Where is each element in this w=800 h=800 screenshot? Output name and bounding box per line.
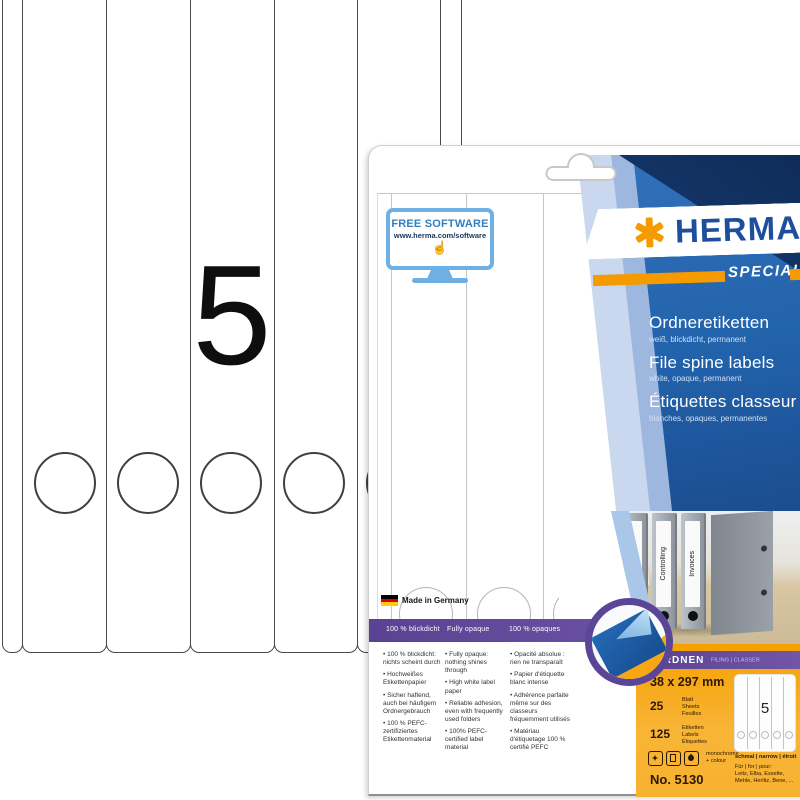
label-count: 125 <box>650 727 670 741</box>
binder-spine-label: Invoices <box>685 521 700 607</box>
binder-label-text: Controlling <box>660 547 667 580</box>
product-titles: Ordneretiketten weiß, blickdicht, perman… <box>649 313 800 432</box>
free-software-url: www.herma.com/software <box>390 231 490 240</box>
window-line <box>543 193 544 619</box>
binder-invoices: Invoices <box>681 513 706 629</box>
mini-sheet-diagram: 5 <box>735 675 795 751</box>
width-note: schmal | narrow | étroit <box>735 754 799 760</box>
compatibility-note: Für | for | pour: Leitz, Elba, Esselte, … <box>735 763 800 785</box>
subtitle-en: white, opaque, permanent <box>649 374 800 383</box>
title-fr: Étiquettes classeur <box>649 392 800 412</box>
title-de: Ordneretiketten <box>649 313 800 333</box>
feature-item: High white label paper <box>445 679 505 695</box>
feature-list-fr: Opacité absolue : rien ne transparaît Pa… <box>510 651 570 756</box>
window-line <box>377 193 378 619</box>
unit-etiketten: Etiketten <box>682 724 722 731</box>
peel-label-icon <box>585 598 673 686</box>
made-in-label: Made in Germany <box>402 596 469 605</box>
unit-etiquettes: Étiquettes <box>682 739 722 746</box>
title-en: File spine labels <box>649 353 800 373</box>
feature-item: Hochweißes Etikettenpapier <box>383 671 443 687</box>
free-software-title: FREE SOFTWARE <box>390 218 490 230</box>
feature-item: 100% PEFC-certified label material <box>445 728 505 752</box>
feature-item: Fully opaque: nothing shines through <box>445 651 505 675</box>
feature-item: Reliable adhesion, even with frequently … <box>445 700 505 724</box>
subtitle-de: weiß, blickdicht, permanent <box>649 335 800 344</box>
sheet-count-units: Blatt Sheets Feuilles <box>682 696 722 718</box>
article-number: No. 5130 <box>650 772 703 787</box>
unit-feuilles: Feuilles <box>682 711 722 718</box>
brand-name: HERMA <box>674 209 800 251</box>
product-packshot: 5 FREE SOFTWARE www.herma.com/software ☝ <box>0 0 800 800</box>
feature-item: Matériau d'étiquetage 100 % certifié PEF… <box>510 728 570 752</box>
unit-labels: Labels <box>682 731 722 738</box>
german-flag-icon <box>381 595 398 606</box>
brand-band: HERMA <box>580 202 800 259</box>
compat-brands: Leitz, Elba, Esselte, Mehle, Herlitz, Be… <box>735 770 800 785</box>
free-software-badge: FREE SOFTWARE www.herma.com/software ☝ <box>386 208 494 270</box>
feature-header-de: 100 % blickdicht <box>386 626 440 633</box>
unit-blatt: Blatt <box>682 696 722 703</box>
label-strip <box>22 0 107 653</box>
unit-sheets: Sheets <box>682 703 722 710</box>
binder-back-panel <box>711 511 773 635</box>
printer-compatibility-icons <box>648 751 699 766</box>
binder-finger-hole <box>688 611 698 621</box>
copier-icon <box>666 751 681 766</box>
package-card: FREE SOFTWARE www.herma.com/software ☝ H… <box>368 145 800 796</box>
subtitle-fr: blanches, opaques, permanentes <box>649 414 800 423</box>
window-sheet-top-edge <box>377 193 583 194</box>
inkjet-printer-icon <box>684 751 699 766</box>
feature-item: Papier d'étiquette blanc intense <box>510 671 570 687</box>
binder-label-text: Invoices <box>689 551 696 577</box>
label-strip <box>2 0 23 653</box>
die-cut-circle <box>34 452 96 514</box>
die-cut-circle <box>283 452 345 514</box>
label-count-units: Etiketten Labels Étiquettes <box>682 724 722 746</box>
laser-printer-icon <box>648 751 663 766</box>
label-strip <box>274 0 358 653</box>
sheet-big-digit: 5 <box>190 245 274 387</box>
feature-item: 100 % PEFC-zertifiziertes Etikettenmater… <box>383 720 443 744</box>
binder-hook <box>761 545 767 551</box>
binder-spine-label: Controlling <box>656 521 671 607</box>
asterisk-logo-icon <box>633 217 664 248</box>
feature-header-fr: 100 % opaques <box>509 626 560 633</box>
binder-hook <box>761 589 767 595</box>
mini-sheet-digit: 5 <box>757 700 773 717</box>
hand-cursor-icon: ☝ <box>390 241 490 254</box>
sheet-count: 25 <box>650 699 663 713</box>
euro-hang-slot <box>545 152 617 186</box>
die-cut-circle <box>117 452 179 514</box>
feature-list-en: Fully opaque: nothing shines through Hig… <box>445 651 505 756</box>
feature-item: Sicher haftend, auch bei häufigem Ordner… <box>383 692 443 716</box>
compat-intro: Für | for | pour: <box>735 763 800 770</box>
die-cut-circle <box>200 452 262 514</box>
label-strip <box>106 0 191 653</box>
special-stripe-end <box>790 269 800 280</box>
category-sub: FILING | CLASSER <box>711 657 760 663</box>
feature-list-de: 100 % blickdicht: nichts scheint durch H… <box>383 651 443 748</box>
monitor-base-icon <box>412 278 468 283</box>
feature-item: 100 % blickdicht: nichts scheint durch <box>383 651 443 667</box>
feature-item: Adhérence parfaite même sur des classeur… <box>510 692 570 725</box>
feature-header-en: Fully opaque <box>447 626 489 633</box>
feature-item: Opacité absolue : rien ne transparaît <box>510 651 570 667</box>
